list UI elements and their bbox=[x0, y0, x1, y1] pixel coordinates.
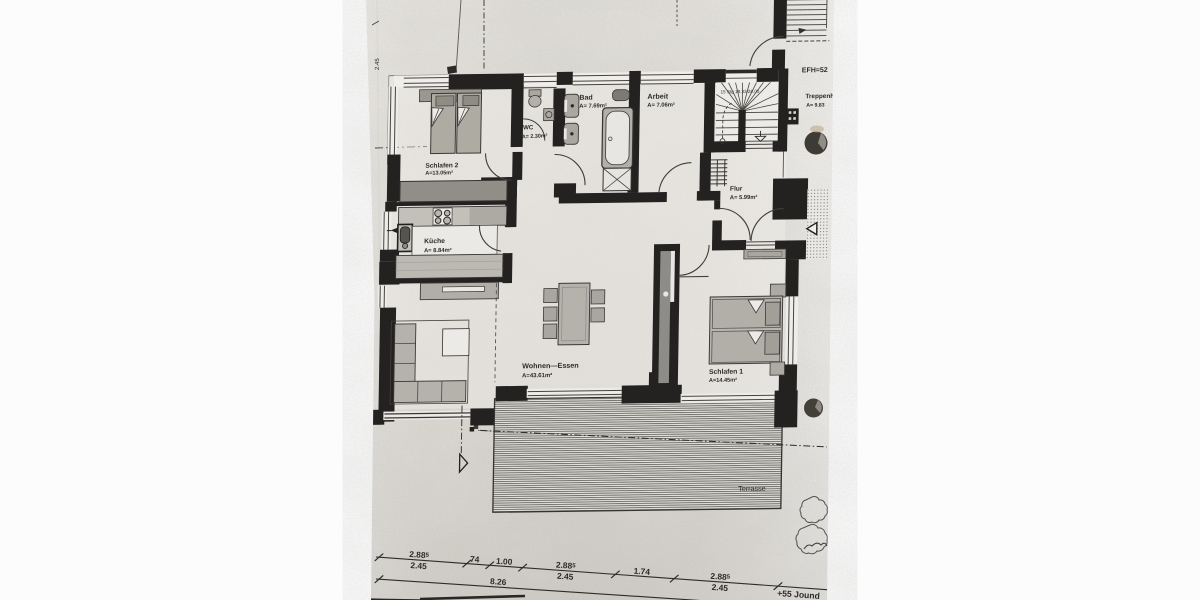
svg-text:Küche: Küche bbox=[424, 238, 445, 245]
svg-text:2.45: 2.45 bbox=[374, 58, 381, 70]
svg-text:2.45: 2.45 bbox=[557, 571, 574, 582]
svg-text:Bad: Bad bbox=[579, 94, 592, 102]
svg-text:A= 5.99m²: A= 5.99m² bbox=[730, 194, 758, 201]
svg-text:WC: WC bbox=[523, 124, 534, 131]
svg-text:A= 8.84m²: A= 8.84m² bbox=[424, 247, 452, 254]
svg-text:8.26: 8.26 bbox=[490, 576, 507, 587]
svg-text:15 Stg 18.33/28.00: 15 Stg 18.33/28.00 bbox=[720, 89, 759, 95]
svg-text:74: 74 bbox=[470, 554, 480, 565]
svg-text:2.45: 2.45 bbox=[711, 582, 728, 593]
svg-text:Terrasse: Terrasse bbox=[738, 484, 766, 493]
svg-text:1.00: 1.00 bbox=[496, 556, 513, 567]
svg-text:Flur: Flur bbox=[730, 186, 743, 193]
svg-text:2.45: 2.45 bbox=[410, 560, 427, 571]
svg-text:1.74: 1.74 bbox=[633, 566, 650, 577]
svg-text:A= 7.06m²: A= 7.06m² bbox=[647, 101, 675, 108]
svg-text:Wohnen—Essen: Wohnen—Essen bbox=[522, 361, 579, 371]
svg-text:Schlafen 1: Schlafen 1 bbox=[709, 369, 743, 376]
svg-text:A=13.05m²: A=13.05m² bbox=[425, 170, 453, 176]
svg-text:+55 Jound: +55 Jound bbox=[777, 588, 820, 600]
svg-text:A=14.45m²: A=14.45m² bbox=[709, 378, 737, 384]
svg-text:A= 7.69m²: A= 7.69m² bbox=[579, 102, 607, 109]
svg-text:Arbeit: Arbeit bbox=[647, 92, 669, 101]
svg-text:A=43.61m²: A=43.61m² bbox=[522, 372, 552, 379]
svg-text:A= 9.83: A= 9.83 bbox=[806, 103, 825, 109]
svg-text:EFH=52: EFH=52 bbox=[802, 67, 828, 74]
svg-text:Schlafen 2: Schlafen 2 bbox=[425, 162, 458, 169]
svg-text:Treppenh: Treppenh bbox=[805, 93, 834, 100]
svg-text:A= 2.30m²: A= 2.30m² bbox=[522, 133, 548, 140]
